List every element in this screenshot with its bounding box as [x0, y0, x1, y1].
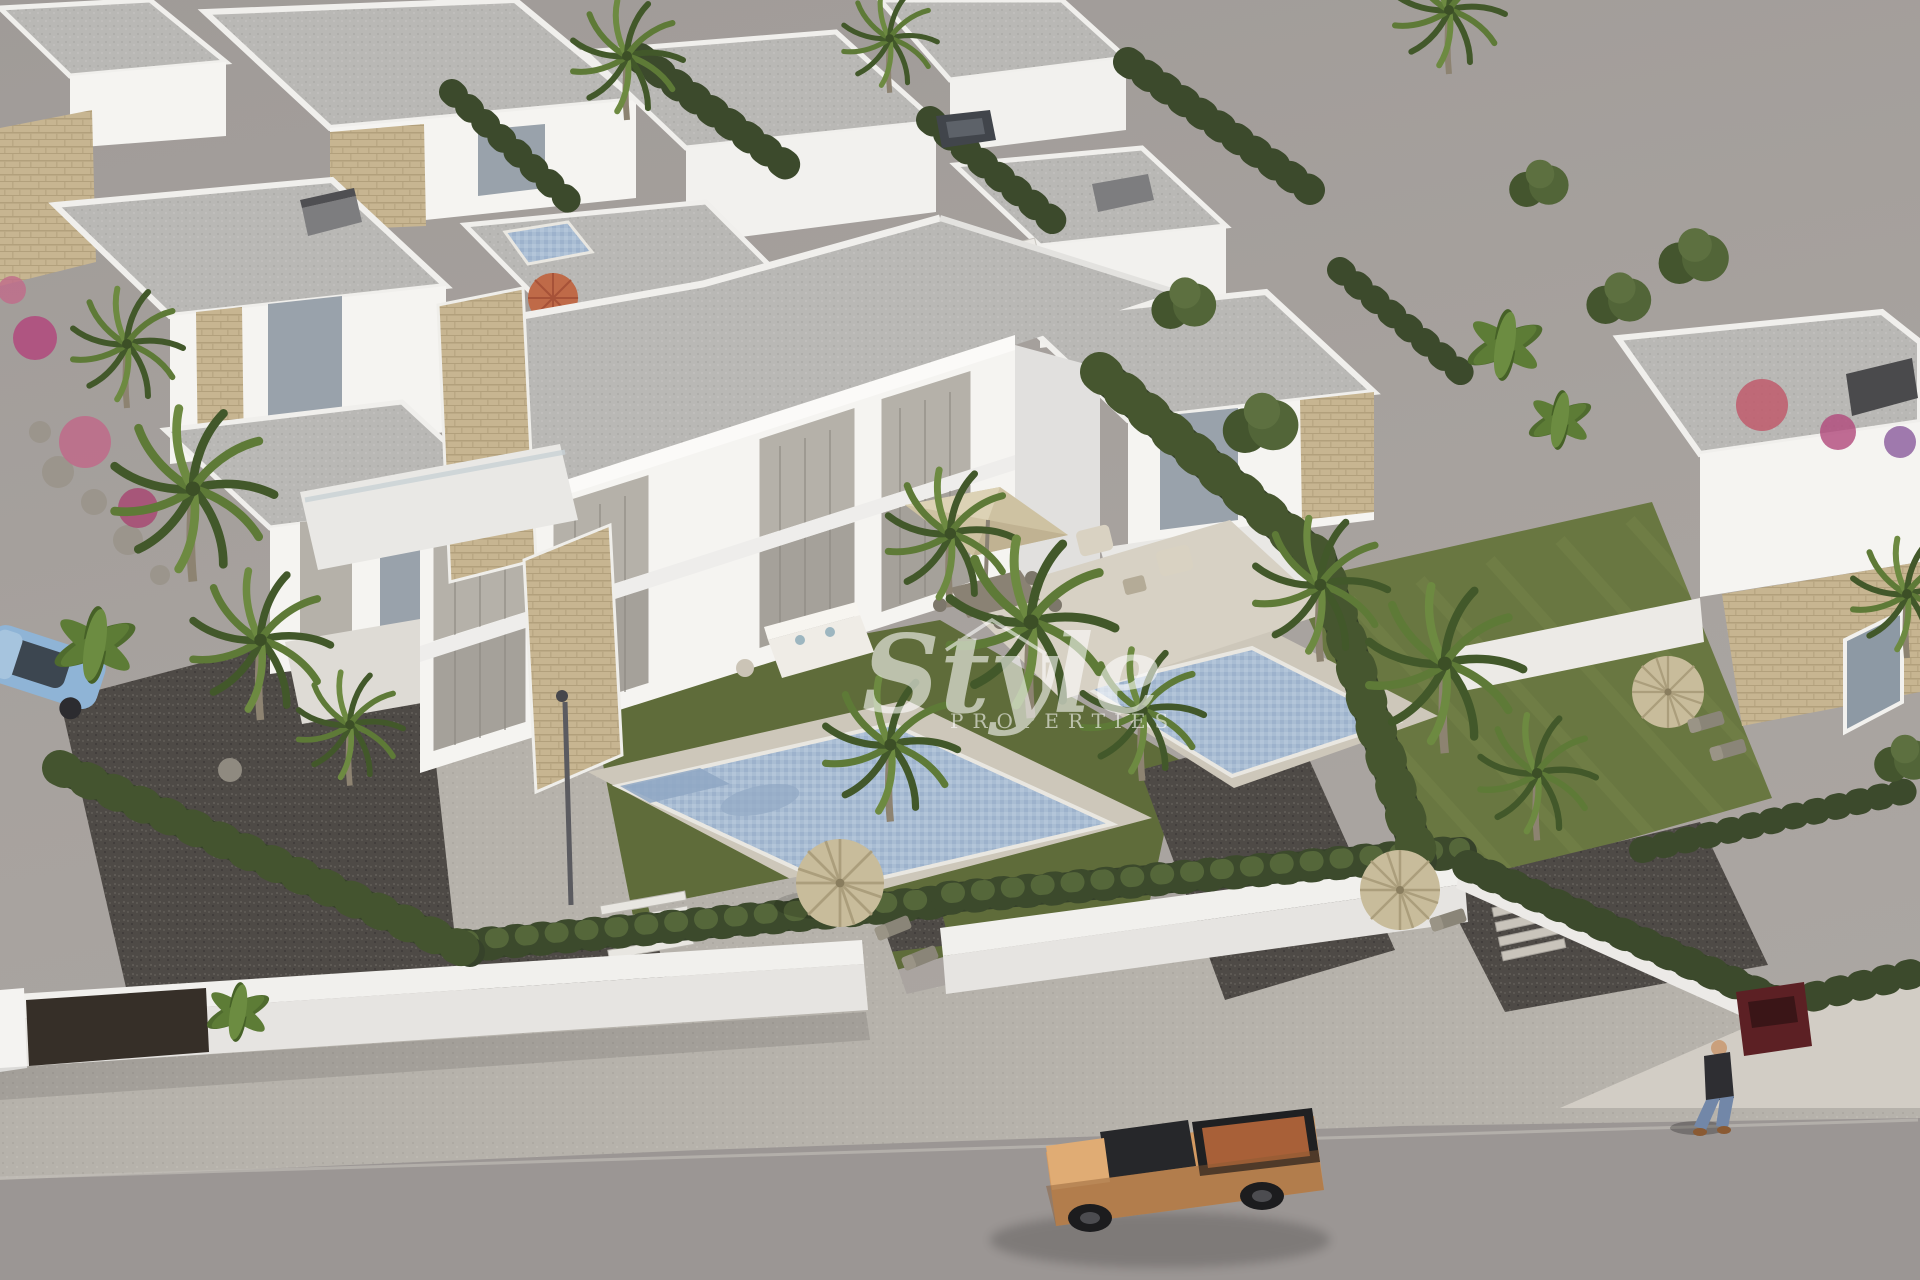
- pedestrian-jacket: [1704, 1052, 1734, 1102]
- watermark-caps-text: PROPERTIES: [950, 709, 1177, 733]
- truck-shadow: [990, 1212, 1330, 1268]
- villa-facade: [70, 62, 226, 148]
- stone-entrance-column: [524, 525, 622, 792]
- render-canvas: Style PROPERTIES: [0, 0, 1920, 1280]
- car-red: [1736, 982, 1812, 1056]
- villa-stone-band: [1300, 392, 1374, 520]
- property-render-image: Style PROPERTIES: [0, 0, 1920, 1280]
- watermark-logo: Style PROPERTIES: [862, 612, 1177, 738]
- villa-stone-wall: [0, 110, 96, 286]
- wall-pillar: [0, 988, 27, 1072]
